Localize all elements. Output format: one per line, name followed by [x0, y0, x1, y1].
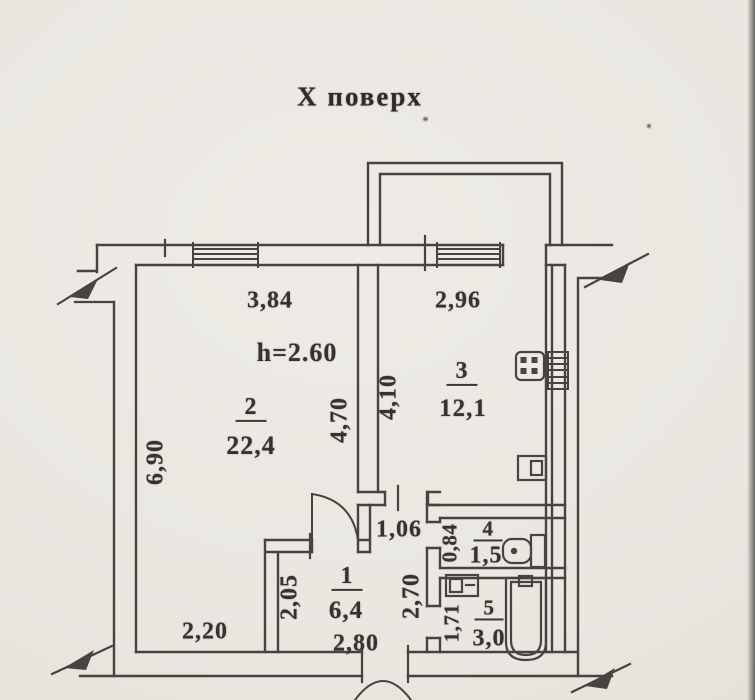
dim-room2-bottom-width: 2,20 [182, 619, 228, 646]
room5-number: 5 [475, 595, 504, 620]
room4-number: 4 [474, 516, 503, 541]
balcony-outline [368, 163, 562, 245]
break-bottom-left-icon [52, 646, 112, 674]
dim-hall-left-height: 2,05 [277, 574, 304, 620]
floor-plan-page: Х поверх 3,84 h=2.60 2 22,4 6,90 4,70 2,… [0, 0, 755, 700]
toilet-icon [503, 535, 545, 567]
paper-speck [423, 117, 428, 121]
room3-number: 3 [447, 358, 478, 386]
dim-kitchen-left-height: 4,10 [376, 374, 403, 420]
dim-room2-top-width: 3,84 [247, 288, 293, 315]
entrance-door-arc [355, 681, 411, 700]
room5-area: 3,0 [473, 626, 506, 653]
dim-hall-bottom-width: 2,80 [333, 631, 379, 658]
dim-corridor-width: 1,06 [376, 517, 422, 544]
window-room2-icon [193, 243, 258, 267]
dim-kitchen-top-width: 2,96 [435, 288, 481, 315]
break-top-right-icon [585, 254, 648, 287]
paper-speck [647, 124, 651, 128]
dim-bath-left-height: 1,71 [440, 604, 465, 643]
kitchen-sink-icon [518, 456, 546, 480]
break-top-left-icon [58, 268, 116, 304]
dim-room2-left-height: 6,90 [143, 439, 170, 485]
stove-icon [516, 352, 544, 380]
room1-area: 6,4 [329, 597, 363, 625]
room2-area: 22,4 [226, 431, 276, 461]
room2-number: 2 [236, 394, 267, 422]
ceiling-height-note: h=2.60 [257, 338, 338, 368]
photo-edge-shadow [747, 0, 755, 700]
room4-area: 1,5 [470, 543, 503, 570]
room2-door-arc [312, 494, 358, 540]
room1-number: 1 [332, 563, 363, 591]
ventilation-shaft-icon [548, 352, 568, 389]
dim-hall-right-height: 2,70 [399, 573, 426, 619]
break-bottom-right-icon [572, 664, 630, 692]
dim-wc-left-height: 0,84 [438, 524, 463, 563]
page-title: Х поверх [297, 82, 423, 113]
bathtub-icon [506, 576, 546, 660]
room3-area: 12,1 [439, 395, 487, 423]
dim-room2-right-height: 4,70 [327, 397, 354, 443]
wall-break-icons [52, 254, 648, 692]
window-kitchen-icon [437, 243, 500, 267]
